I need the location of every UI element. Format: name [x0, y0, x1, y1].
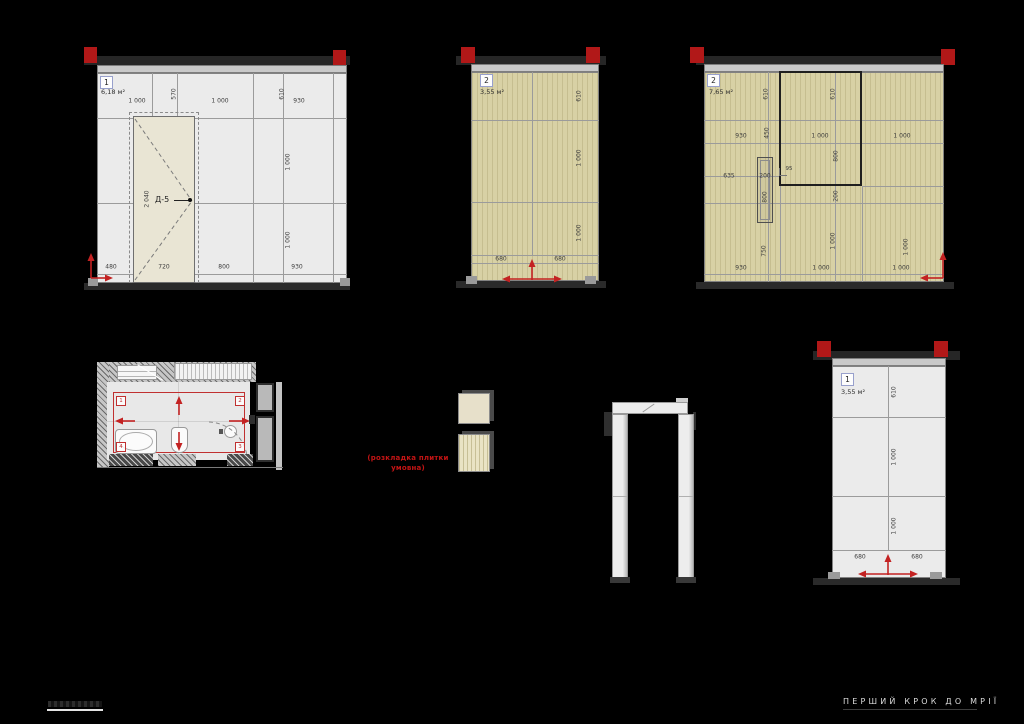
frame-bottom-cap: [676, 577, 696, 583]
dim-label: 800: [218, 264, 229, 271]
tile-swatch-striped: [458, 434, 490, 472]
frame-jamb-left: [612, 414, 628, 580]
dim-label: 2 040: [144, 190, 151, 207]
dim-label: 1 000: [903, 238, 910, 255]
floor-band: [84, 283, 350, 290]
title-underline: [843, 709, 977, 710]
section-marker: [586, 47, 600, 63]
dim-label: 720: [158, 264, 169, 271]
elevation-tag: 2: [707, 74, 720, 87]
dim-label: 750: [761, 245, 768, 256]
ceiling-band: [84, 56, 350, 65]
tile-joint: [471, 120, 599, 121]
section-marker: [817, 341, 831, 357]
elevation-tag: 1: [841, 373, 854, 386]
dim-label: 610: [891, 386, 898, 397]
plan-wall-right-edge: [276, 382, 282, 470]
wall-top-trim: [471, 64, 599, 72]
tile-joint: [832, 417, 946, 418]
dim-label: 610: [279, 88, 286, 99]
elevation-tag: 2: [480, 74, 493, 87]
frame-jamb-right: [678, 414, 694, 580]
tile-joint: [862, 186, 944, 187]
wall-end-nub: [340, 278, 350, 286]
frame-bottom-cap: [610, 577, 630, 583]
frame-header: [612, 402, 688, 414]
area-label: 7,65 м²: [709, 88, 733, 96]
dim-label: 1 000: [891, 517, 898, 534]
dim-label: 200: [759, 173, 770, 180]
dim-label: 1 000: [811, 133, 828, 140]
dim-label: 930: [735, 265, 746, 272]
dim-label: 800: [762, 191, 769, 202]
tile-joint: [471, 202, 599, 203]
view-arrow-up: [173, 395, 185, 417]
dim-label: 1 000: [285, 153, 292, 170]
tile-joint: [532, 72, 533, 255]
plan-wall-bottom: [109, 454, 153, 466]
area-label: 6,18 м²: [101, 88, 125, 96]
plan-wall-marker: 4: [116, 442, 126, 452]
wall-end-nub: [466, 276, 477, 284]
wall-surface: [832, 366, 946, 578]
tile-joint: [832, 496, 946, 497]
dim-label: 610: [763, 88, 770, 99]
dim-line: [832, 550, 946, 551]
plan-wall-marker: 3: [235, 442, 245, 452]
wall-surface: [471, 72, 599, 281]
leader-dot: [188, 198, 192, 202]
footer-logo-underline: [47, 709, 103, 711]
dim-label: 635: [723, 173, 734, 180]
wall-end-nub: [585, 276, 596, 284]
dim-label: 1 000: [285, 231, 292, 248]
dim-label: 570: [171, 88, 178, 99]
tile-joint: [283, 73, 284, 283]
tile-joint: [471, 255, 599, 256]
dim-label: 1 000: [576, 149, 583, 166]
frame-dark-mark: [604, 412, 612, 436]
plan-cabinet: [256, 383, 274, 412]
section-marker: [941, 49, 955, 65]
plan-wall-bottom: [158, 454, 196, 466]
axis-arrow-corner: [84, 250, 114, 282]
area-label: 3,55 м²: [480, 88, 504, 96]
drawing-sheet: 2 040 Д-5 1 6,18 м² 1 000 570 1 000 610 …: [0, 0, 1024, 724]
floor-band: [696, 282, 954, 289]
dim-label: 1 000: [211, 98, 228, 105]
plan-vanity: [174, 363, 252, 380]
leader-line: [174, 200, 189, 201]
dim-label: 930: [293, 98, 304, 105]
dim-label: 930: [735, 133, 746, 140]
axis-arrow-cross: [858, 553, 918, 581]
niche-outline: [757, 157, 773, 223]
dim-label: 1 000: [812, 265, 829, 272]
dim-label: 1 000: [891, 448, 898, 465]
jamb-joint: [613, 496, 627, 497]
wall-end-nub: [930, 572, 942, 579]
section-marker: [333, 50, 346, 66]
dim-label: 95: [786, 166, 793, 172]
section-marker: [461, 47, 475, 63]
dim-label: 610: [830, 88, 837, 99]
tile-joint: [862, 186, 863, 282]
axis-arrow-corner: [918, 250, 950, 282]
plan-block: [249, 415, 255, 424]
dim-label: 610: [576, 90, 583, 101]
door-tag: Д-5: [155, 195, 169, 204]
section-marker: [84, 47, 97, 63]
footer-logo-smudge: [48, 701, 102, 707]
tile-joint: [888, 366, 889, 550]
plan-wall-marker: 1: [116, 396, 126, 406]
area-label: 3,55 м²: [841, 388, 865, 396]
wall-top-trim: [832, 358, 946, 366]
plan-wall-bottom: [227, 454, 253, 466]
dim-label: 1 000: [893, 133, 910, 140]
dim-label: 1 000: [576, 224, 583, 241]
tile-joint: [704, 203, 944, 204]
jamb-joint: [679, 496, 693, 497]
note-text: умовна): [391, 464, 425, 472]
section-marker: [934, 341, 948, 357]
tile-joint: [253, 73, 254, 283]
plan-wall-marker: 2: [235, 396, 245, 406]
wall-end-nub: [828, 572, 840, 579]
plan-cabinet: [256, 416, 274, 462]
dim-label: 200: [833, 190, 840, 201]
tile-joint: [780, 186, 781, 282]
view-arrow-down: [173, 430, 185, 452]
project-title: ПЕРШИЙ КРОК ДО МРІЇ: [843, 697, 999, 706]
tile-swatch-plain: [458, 393, 490, 424]
section-marker: [690, 47, 704, 63]
plan-outline: [97, 467, 283, 468]
niche-inner-line: [760, 160, 770, 220]
dim-label: 930: [291, 264, 302, 271]
axis-arrow-cross: [502, 258, 562, 286]
dim-line: [704, 274, 944, 275]
note-text: (розкладка плитки: [367, 454, 448, 462]
dim-label: 1 000: [128, 98, 145, 105]
dim-label: 800: [833, 150, 840, 161]
dim-label: 450: [764, 127, 771, 138]
dim-label: 1 000: [892, 265, 909, 272]
tile-joint: [333, 73, 334, 283]
dim-label: 1 000: [830, 232, 837, 249]
wall-top-trim: [97, 65, 347, 73]
view-arrow-left: [113, 415, 137, 427]
